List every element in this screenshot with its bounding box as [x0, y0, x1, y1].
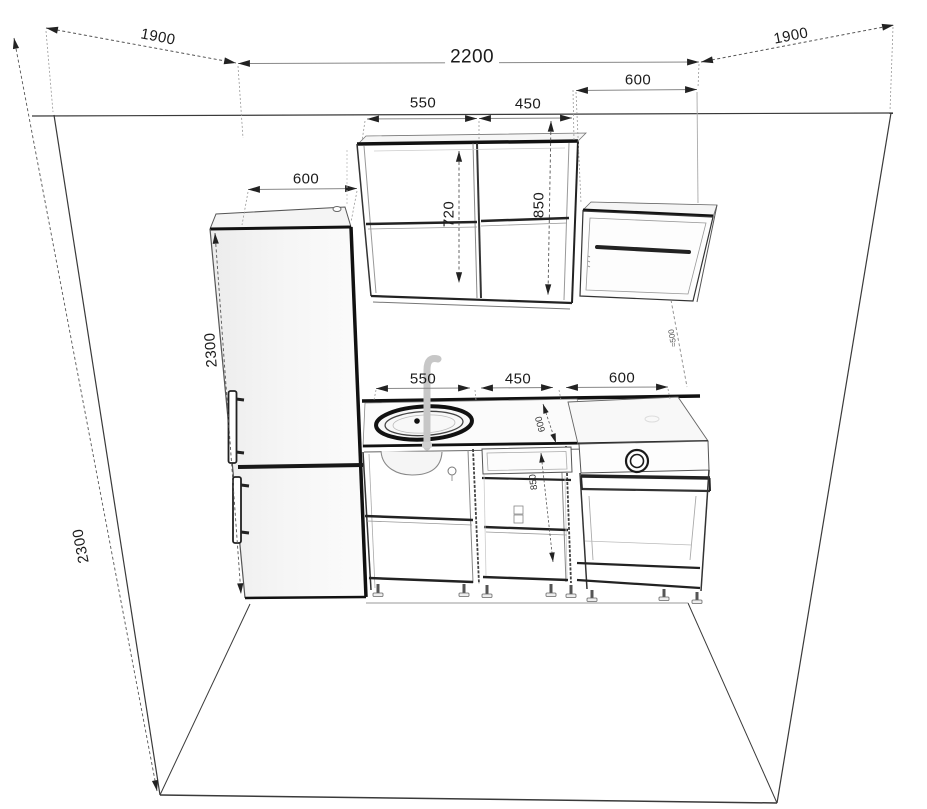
sink-cabinet-shelf-inner [367, 521, 472, 525]
stove-left-edge [580, 473, 587, 589]
wall-cabinet-2-shelf [481, 218, 569, 221]
dim-450-mid-label: 450 [505, 372, 531, 387]
drain-trap [448, 467, 456, 475]
dim-450-mid-line [481, 388, 553, 389]
dim-550-top-label: 550 [410, 96, 436, 111]
dim-2200-label: 2200 [445, 48, 499, 67]
dim-2300-fridge-label: 2300 [202, 332, 219, 368]
wall-cabinet-divider [477, 143, 481, 298]
floor-front-edge [160, 795, 777, 803]
cabinet-legs [373, 584, 702, 604]
fridge-door-divider [238, 465, 363, 467]
sink-cabinet-bottom [369, 578, 473, 582]
room-perspective-box [32, 113, 893, 803]
dim-550-mid-line [376, 388, 470, 389]
dim-600-hood-label: 600 [625, 73, 651, 88]
dim-720-label: 720 [442, 201, 457, 227]
oven-handle-cap-right [710, 478, 711, 491]
fridge-top-cap [333, 207, 341, 212]
back-wall-top-edge [32, 113, 893, 116]
kitchen-elevation-drawing [0, 0, 927, 809]
stove-right-edge [701, 470, 709, 591]
leg [373, 584, 383, 597]
ext-line [351, 191, 357, 222]
base-divider-1-inner [468, 450, 473, 583]
floor-right-edge [688, 603, 777, 803]
wall-cabinet-right-inner [564, 143, 569, 300]
mid-cabinet-bottom [483, 577, 568, 580]
fridge-top-edge [210, 227, 351, 229]
wall-cabinet-right-side [572, 141, 578, 303]
leg [566, 585, 576, 598]
oven-cavity-left [589, 496, 593, 560]
wall-cabinet-bottom-edge [371, 296, 572, 303]
sink-bowl-under [381, 451, 442, 475]
mid-cabinet-inner-left [484, 475, 486, 576]
dim-600-fridge-line [248, 189, 357, 190]
ext-line [697, 92, 698, 203]
ext-line [698, 64, 699, 88]
base-divider-1 [473, 449, 479, 584]
wall-cabinet-1-shelf [366, 222, 477, 224]
dim-850-wall-line [548, 121, 551, 295]
dim-550-mid-label: 550 [410, 372, 436, 387]
oven-shelf-front [577, 563, 700, 568]
dim-600-hood-line [576, 90, 697, 91]
ext-line [46, 31, 53, 112]
left-wall-corner-edge [54, 115, 160, 795]
leg [482, 585, 492, 598]
fridge [210, 207, 366, 599]
right-wall-corner-edge [777, 113, 891, 803]
dim-2300-wall-line [14, 38, 157, 791]
dim-600-mid-label: 600 [609, 371, 635, 386]
stove-top-face [568, 397, 708, 444]
leg [692, 592, 702, 604]
fridge-bottom-edge [245, 597, 366, 598]
leg [546, 584, 556, 597]
dim-450-top-line [479, 118, 572, 119]
ext-line [238, 66, 243, 138]
wall-cabinets [357, 133, 586, 309]
dim-600-mid-line [566, 387, 668, 388]
ext-line [890, 27, 893, 111]
base-cabinets [363, 446, 572, 590]
stove-unit [568, 397, 710, 591]
oven-shelf-back [585, 541, 692, 545]
hinge-symbol [514, 506, 523, 523]
wall-cabinet-1-shelf-inner [368, 227, 477, 229]
mid-cabinet-shelf-inner [486, 532, 567, 535]
wall-cabinet-left-inner [364, 146, 376, 293]
leg [587, 590, 597, 602]
oven-knob-inner [631, 455, 644, 468]
oven-cavity-right [690, 496, 696, 560]
ext-line [374, 390, 376, 400]
sink-drain [414, 418, 420, 424]
wall-cabinet-bottom-inner [373, 302, 570, 309]
mid-cabinet-rail [482, 478, 571, 480]
range-hood [580, 202, 717, 387]
wall-cabinet-divider-inner [473, 144, 477, 299]
fridge-top-face [210, 207, 351, 229]
dim-850-base-label: 850 [528, 474, 539, 491]
mid-cabinet-shelf [484, 527, 568, 530]
leg [459, 584, 469, 597]
floor-left-edge [160, 604, 250, 795]
sink-cabinet-shelf [365, 516, 473, 520]
stove-bottom-edge [577, 580, 700, 588]
kitchen-drawing-stage: 1900 2200 1900 600 550 450 600 2300 2300… [0, 0, 927, 809]
wall-cabinet-2-shelf-inner [481, 223, 567, 226]
dim-550-top-line [367, 119, 477, 120]
dim-600-fridge-label: 600 [293, 172, 319, 187]
dim-850-wall-label: 850 [532, 192, 547, 218]
wall-cabinet-left-side [357, 144, 371, 296]
dim-450-top-label: 450 [515, 97, 541, 112]
wall-cabinet-back-top [374, 148, 565, 151]
leg [659, 589, 669, 601]
oven-handle-bar [581, 476, 710, 478]
hood-front-panel [580, 211, 713, 301]
oven-handle-bar-2 [582, 489, 710, 491]
